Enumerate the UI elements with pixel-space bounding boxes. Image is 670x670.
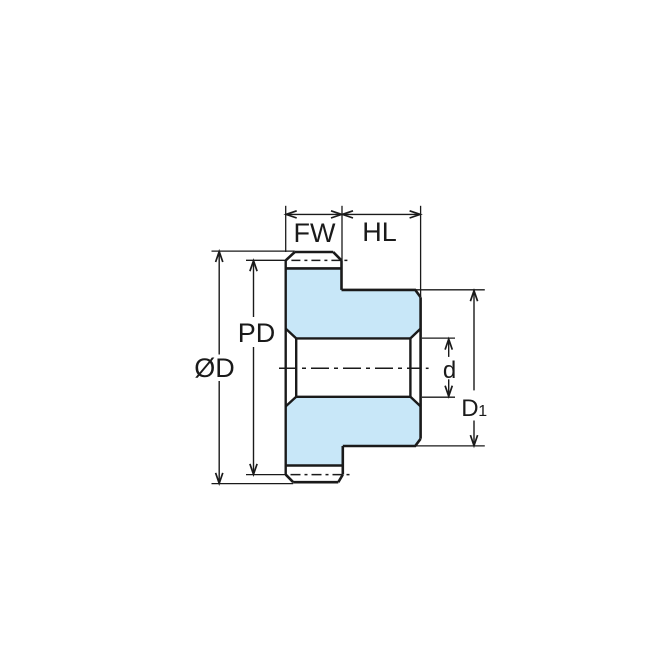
svg-text:d: d [443,357,456,384]
svg-text:D: D [461,395,478,422]
svg-text:FW: FW [294,218,336,248]
svg-text:ØD: ØD [194,353,235,383]
svg-text:1: 1 [478,403,487,420]
svg-text:HL: HL [362,217,397,247]
svg-text:PD: PD [238,318,276,348]
